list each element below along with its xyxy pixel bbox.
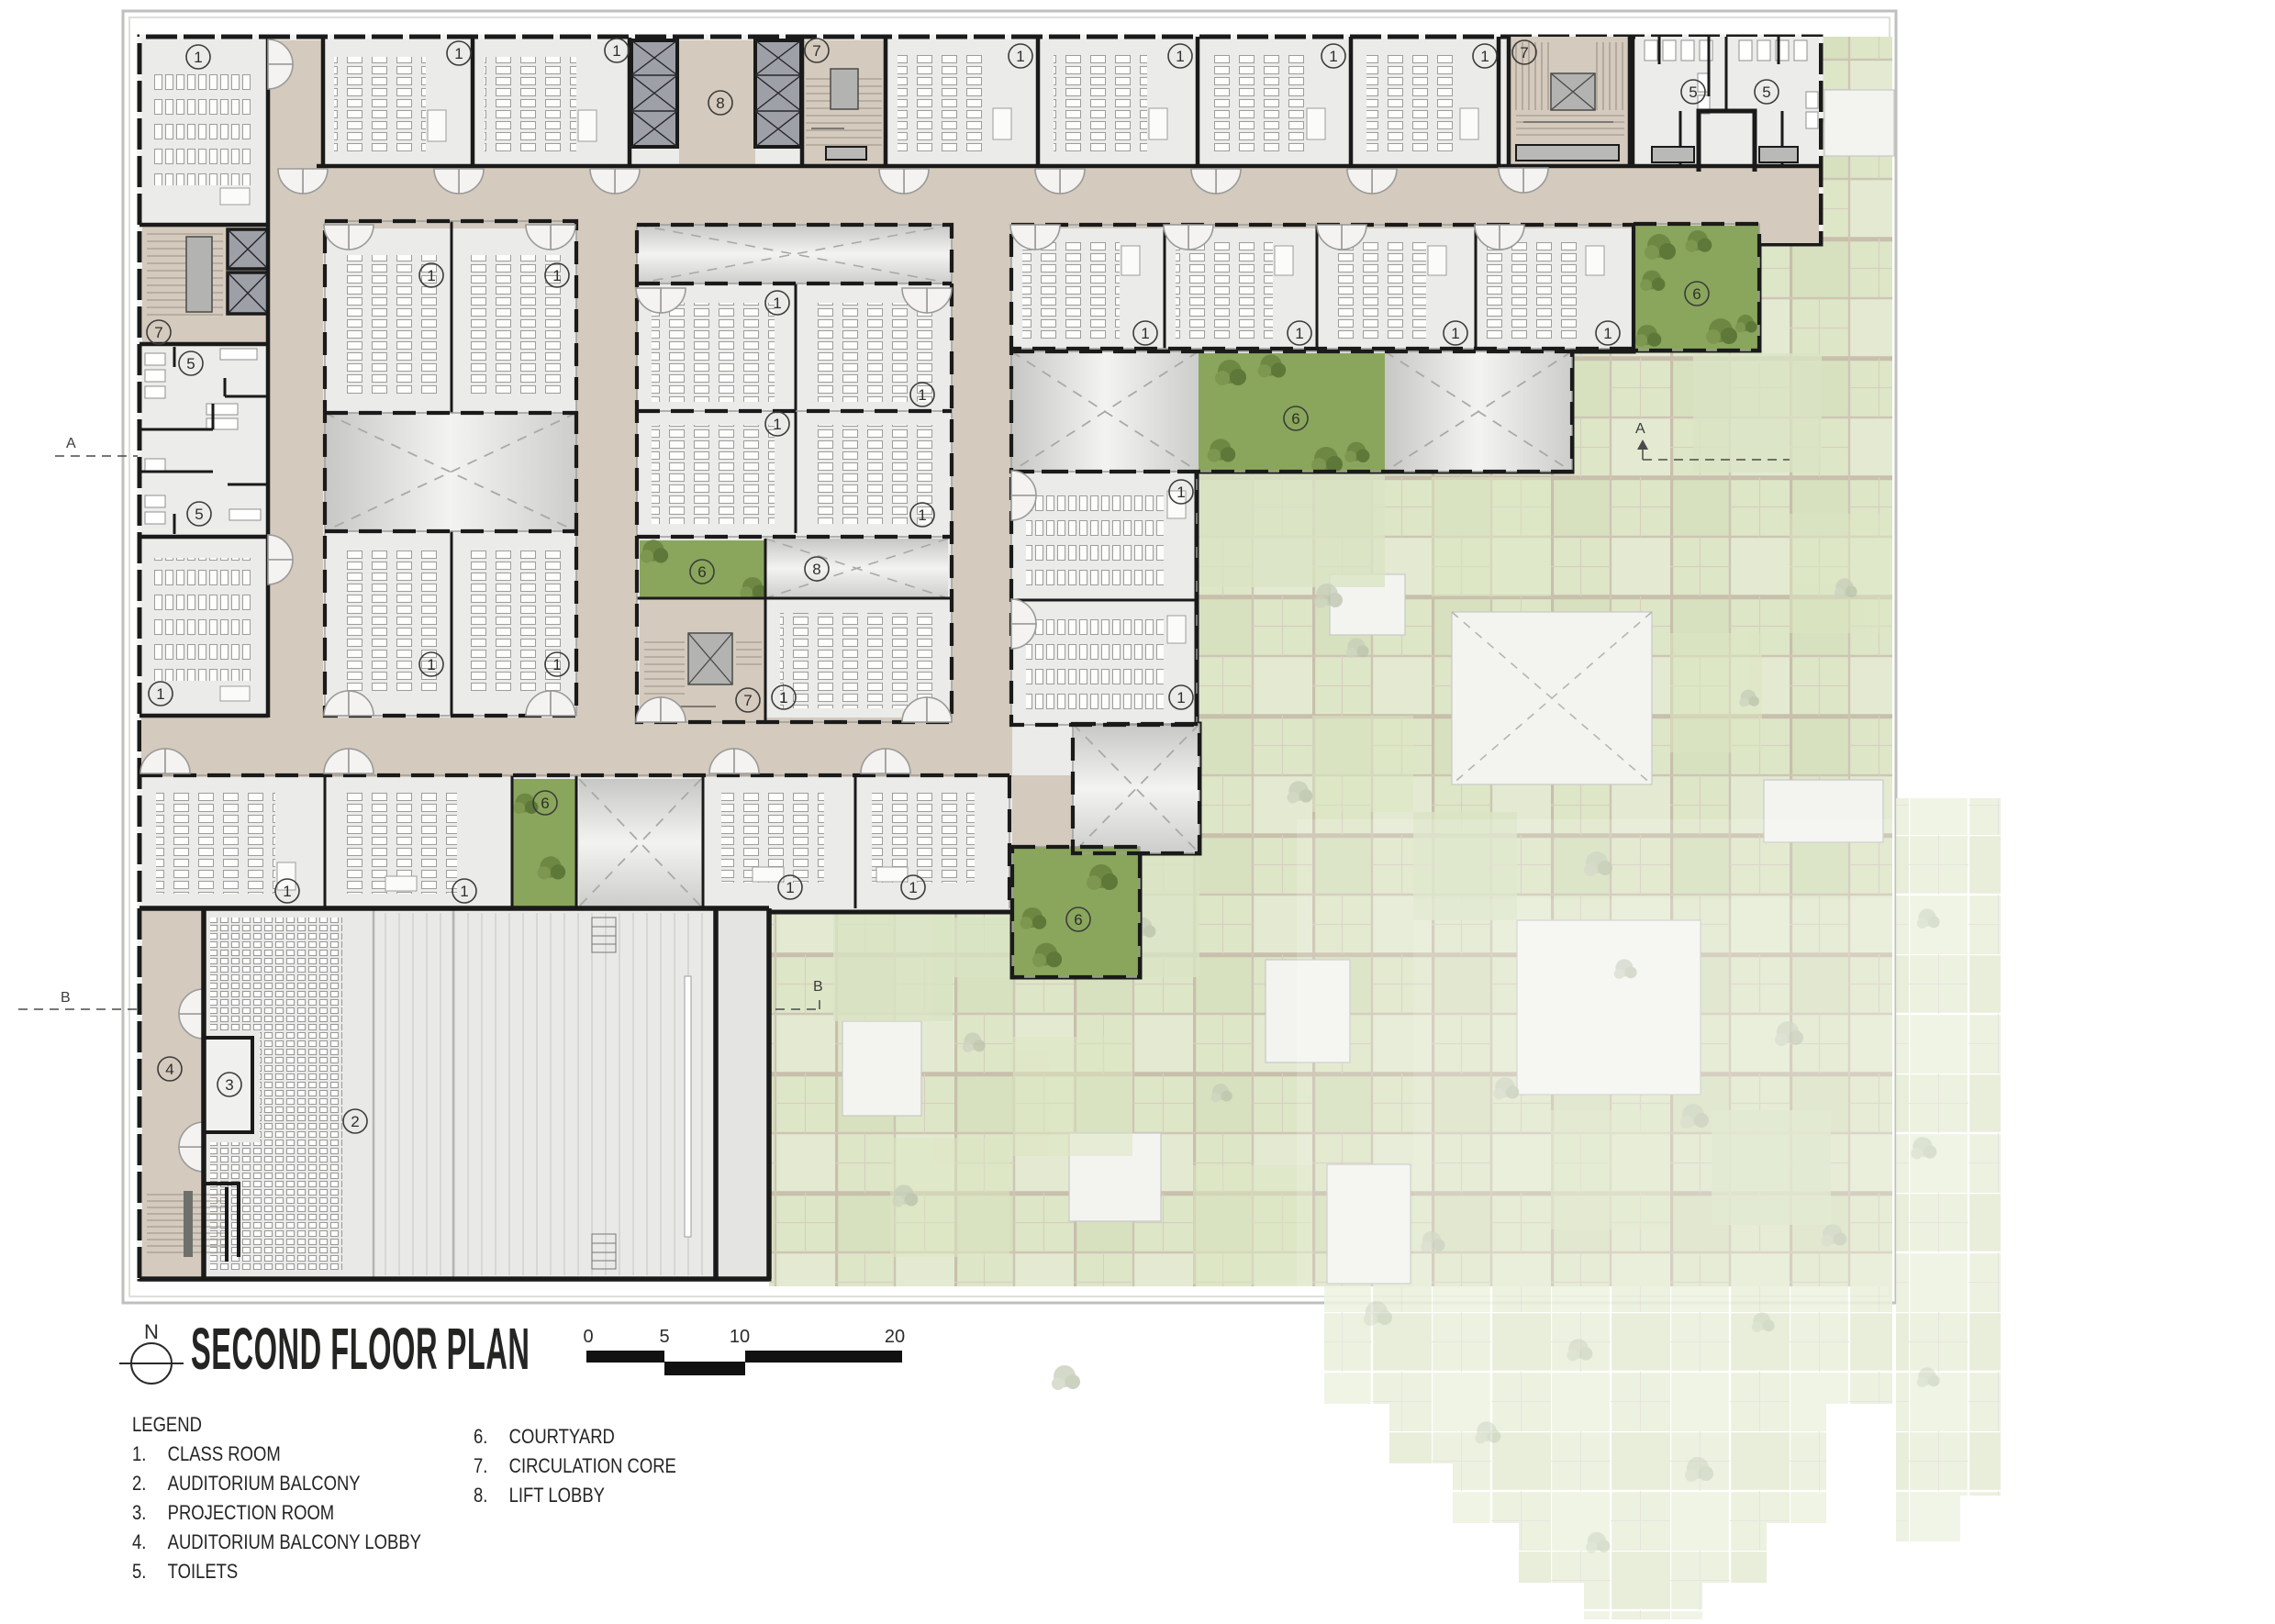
svg-text:5: 5 (1689, 83, 1697, 101)
svg-text:7: 7 (1520, 44, 1528, 61)
svg-text:CIRCULATION CORE: CIRCULATION CORE (509, 1456, 676, 1478)
svg-text:1: 1 (552, 267, 561, 284)
svg-text:5.: 5. (132, 1562, 146, 1584)
svg-text:8.: 8. (474, 1485, 487, 1507)
svg-text:1: 1 (460, 883, 468, 900)
svg-text:4: 4 (165, 1061, 173, 1078)
svg-text:6: 6 (1692, 285, 1701, 303)
svg-text:AUDITORIUM BALCONY LOBBY: AUDITORIUM BALCONY LOBBY (168, 1532, 422, 1554)
svg-text:3: 3 (225, 1076, 233, 1094)
svg-text:6: 6 (541, 795, 549, 812)
svg-text:CLASS ROOM: CLASS ROOM (168, 1444, 281, 1466)
svg-text:4.: 4. (132, 1532, 146, 1554)
svg-text:1: 1 (427, 267, 435, 284)
svg-text:A: A (1635, 421, 1645, 437)
svg-text:1: 1 (1480, 48, 1489, 65)
svg-text:1: 1 (552, 656, 561, 673)
svg-text:LEGEND: LEGEND (132, 1415, 202, 1437)
svg-text:1: 1 (156, 685, 164, 703)
svg-text:8: 8 (716, 95, 724, 112)
svg-text:1: 1 (779, 689, 787, 706)
svg-text:1: 1 (1603, 325, 1611, 342)
svg-text:1: 1 (1176, 48, 1184, 65)
svg-text:1: 1 (1177, 484, 1185, 501)
svg-text:6.: 6. (474, 1427, 487, 1449)
svg-text:PROJECTION ROOM: PROJECTION ROOM (168, 1503, 335, 1525)
svg-text:1: 1 (1177, 689, 1185, 706)
svg-text:AUDITORIUM BALCONY: AUDITORIUM BALCONY (168, 1474, 361, 1496)
svg-text:10: 10 (730, 1327, 750, 1347)
svg-text:N: N (144, 1320, 159, 1343)
svg-text:1: 1 (612, 42, 620, 60)
svg-text:0: 0 (583, 1327, 593, 1347)
svg-text:1: 1 (1295, 325, 1303, 342)
svg-text:TOILETS: TOILETS (168, 1562, 239, 1584)
svg-text:7: 7 (743, 692, 752, 709)
svg-text:SECOND FLOOR PLAN: SECOND FLOOR PLAN (191, 1316, 530, 1382)
svg-text:5: 5 (659, 1327, 669, 1347)
svg-text:1: 1 (283, 883, 291, 900)
svg-text:7: 7 (812, 42, 820, 60)
svg-text:3.: 3. (132, 1503, 146, 1525)
svg-text:1: 1 (194, 49, 202, 66)
svg-text:1: 1 (773, 295, 781, 312)
svg-text:1: 1 (1329, 48, 1337, 65)
svg-text:COURTYARD: COURTYARD (509, 1427, 615, 1449)
svg-text:1: 1 (909, 879, 917, 896)
svg-text:7.: 7. (474, 1456, 487, 1478)
svg-text:20: 20 (885, 1327, 905, 1347)
svg-text:5: 5 (195, 506, 203, 523)
svg-text:6: 6 (1074, 911, 1082, 929)
svg-text:1: 1 (786, 879, 794, 896)
svg-text:1: 1 (773, 416, 781, 433)
svg-text:5: 5 (1762, 83, 1770, 101)
svg-text:7: 7 (154, 324, 162, 341)
svg-text:1.: 1. (132, 1444, 146, 1466)
svg-text:5: 5 (186, 355, 195, 373)
svg-text:A: A (66, 436, 76, 451)
svg-text:1: 1 (427, 656, 435, 673)
svg-text:B: B (813, 979, 823, 995)
svg-text:8: 8 (812, 561, 820, 578)
svg-text:6: 6 (1291, 410, 1299, 428)
svg-text:2.: 2. (132, 1474, 146, 1496)
svg-text:1: 1 (918, 506, 926, 524)
svg-text:1: 1 (918, 386, 926, 404)
svg-text:2: 2 (351, 1113, 359, 1130)
svg-text:1: 1 (1451, 325, 1459, 342)
svg-text:1: 1 (454, 45, 463, 62)
svg-text:1: 1 (1141, 325, 1149, 342)
svg-text:6: 6 (697, 563, 706, 581)
svg-text:LIFT LOBBY: LIFT LOBBY (509, 1485, 606, 1507)
svg-text:1: 1 (1016, 48, 1024, 65)
svg-text:B: B (61, 990, 71, 1006)
